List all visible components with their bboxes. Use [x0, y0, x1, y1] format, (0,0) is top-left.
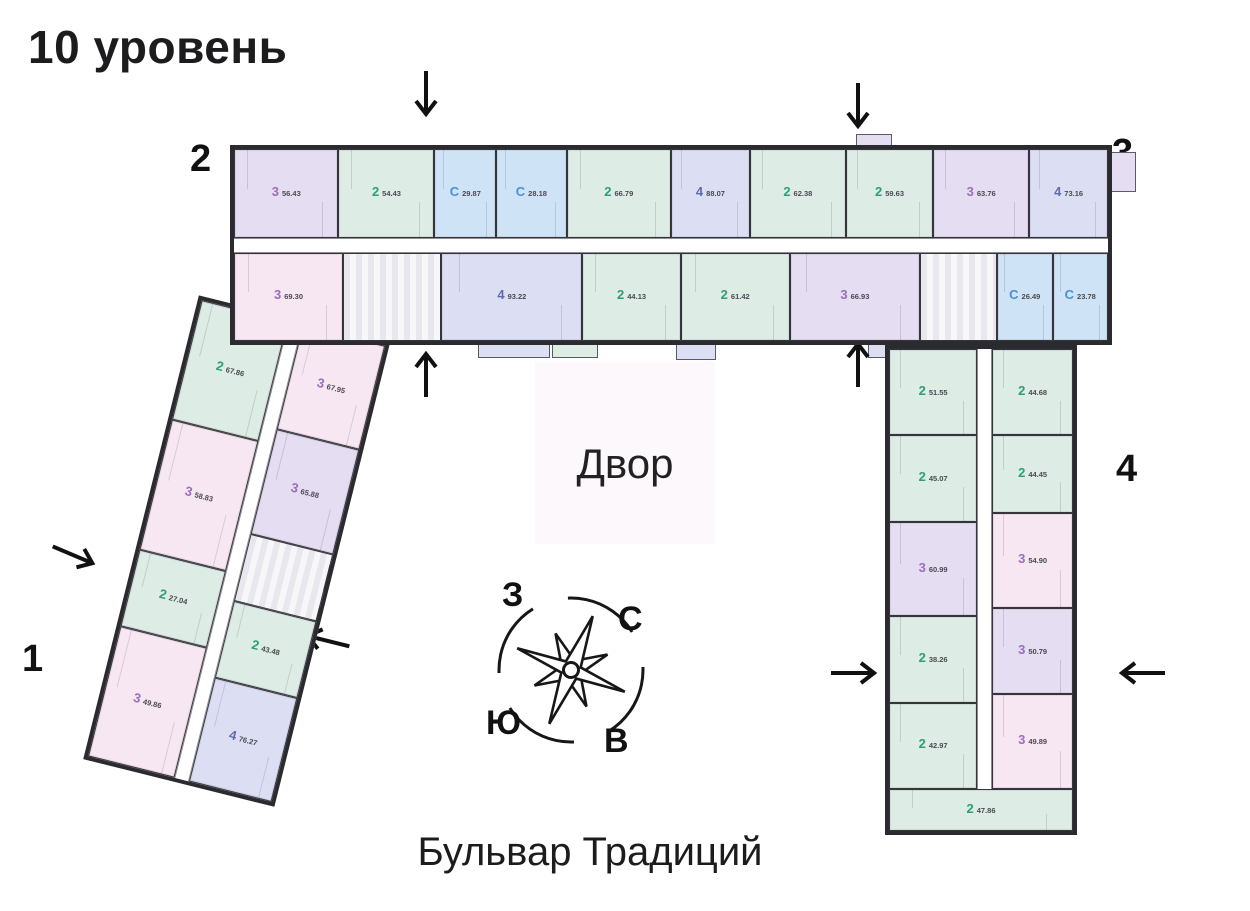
apartment-label: 488.07 — [696, 185, 725, 198]
apartment-area: 44.13 — [627, 293, 646, 301]
apartment-area: 88.07 — [706, 190, 725, 198]
apartment-rooms: 2 — [215, 359, 225, 373]
apartment-area: 44.68 — [1028, 389, 1047, 397]
apartment-rooms: 2 — [919, 737, 926, 750]
apartment-area: 67.86 — [225, 366, 245, 378]
apartment-area: 54.43 — [382, 190, 401, 198]
page-title: 10 уровень — [28, 20, 287, 74]
apartment-label: 360.99 — [919, 561, 948, 574]
apartment-area: 62.38 — [794, 190, 813, 198]
apartment-rooms: С — [1065, 288, 1074, 301]
entrance-arrow-southeast — [45, 533, 101, 576]
apartment-cell[interactable]: С29.87 — [434, 149, 496, 238]
apartment-rooms: 2 — [919, 384, 926, 397]
apartment-area: 56.43 — [282, 190, 301, 198]
apartment-label: 363.76 — [967, 185, 996, 198]
apartment-rooms: 2 — [1018, 466, 1025, 479]
wing-section-1: 267.86358.83227.04349.86 367.95365.88243… — [83, 295, 390, 806]
compass-east-label: В — [604, 722, 629, 761]
apartment-rooms: 2 — [919, 651, 926, 664]
apartment-rooms: 3 — [1018, 643, 1025, 656]
apartment-area: 29.87 — [462, 190, 481, 198]
apartment-cell[interactable]: 247.86 — [889, 789, 1073, 831]
street-name: Бульвар Традиций — [330, 830, 850, 875]
entrance-arrow-up — [845, 340, 871, 390]
apartment-label: 247.86 — [966, 802, 995, 815]
apartment-rooms: 3 — [919, 561, 926, 574]
apartment-cell[interactable]: С28.18 — [496, 149, 566, 238]
apartment-rooms: С — [516, 185, 525, 198]
apartment-cell[interactable]: 360.99 — [889, 522, 977, 617]
apartment-area: 47.86 — [977, 807, 996, 815]
apartment-label: 354.90 — [1018, 552, 1047, 565]
apartment-label: С28.18 — [516, 185, 547, 198]
apartment-cell[interactable]: 242.97 — [889, 703, 977, 789]
apartment-cell[interactable]: 261.42 — [681, 253, 790, 342]
apartment-cell[interactable]: 356.43 — [234, 149, 338, 238]
apartment-area: 50.79 — [1028, 648, 1047, 656]
apartment-rooms: 2 — [875, 185, 882, 198]
compass-south-label: Ю — [486, 704, 521, 743]
apartment-area: 45.07 — [929, 475, 948, 483]
section-number-4: 4 — [1116, 448, 1137, 491]
apartment-label: 244.68 — [1018, 384, 1047, 397]
apartment-cell[interactable]: 349.89 — [992, 694, 1073, 789]
apartment-cell[interactable]: 244.68 — [992, 349, 1073, 435]
apartment-area: 59.63 — [885, 190, 904, 198]
apartment-rooms: 2 — [783, 185, 790, 198]
corridor — [234, 238, 1108, 253]
apartment-rooms: 3 — [316, 376, 326, 390]
compass-rose: З С Ю В — [486, 576, 658, 758]
apartment-cell[interactable]: 366.93 — [790, 253, 920, 342]
apartment-cell[interactable]: 244.45 — [992, 435, 1073, 513]
apartment-rooms: 4 — [1054, 185, 1061, 198]
apartment-label: 251.55 — [919, 384, 948, 397]
apartment-area: 49.89 — [1028, 738, 1047, 746]
apartment-cell[interactable]: 473.16 — [1029, 149, 1108, 238]
entrance-arrow-right — [828, 660, 878, 686]
apartment-area: 49.86 — [142, 698, 162, 710]
apartment-area: 66.93 — [851, 293, 870, 301]
apartment-cell[interactable]: 251.55 — [889, 349, 977, 435]
apartment-area: 43.48 — [261, 645, 281, 657]
apartment-label: 227.04 — [158, 587, 189, 607]
apartment-rooms: 3 — [132, 690, 142, 704]
apartment-label: 267.86 — [215, 359, 246, 379]
apartment-area: 28.18 — [528, 190, 547, 198]
apartment-cell[interactable]: 266.79 — [567, 149, 671, 238]
stair-elevator-core — [343, 253, 441, 342]
wing-section-4: 251.55245.07360.99238.26242.97 244.68244… — [885, 345, 1077, 835]
apartment-label: С29.87 — [450, 185, 481, 198]
apartment-label: 243.48 — [251, 638, 282, 658]
apartment-area: 27.04 — [168, 594, 188, 606]
apartment-rooms: 2 — [919, 470, 926, 483]
apartment-label: 259.63 — [875, 185, 904, 198]
apartment-cell[interactable]: 259.63 — [846, 149, 933, 238]
apartment-rooms: 4 — [497, 288, 504, 301]
apartment-rooms: 4 — [696, 185, 703, 198]
apartment-area: 54.90 — [1028, 557, 1047, 565]
apartment-label: 473.16 — [1054, 185, 1083, 198]
apartment-cell[interactable]: 369.30 — [234, 253, 343, 342]
apartment-area: 66.79 — [614, 190, 633, 198]
courtyard-label: Двор — [540, 440, 710, 488]
apartment-rooms: 2 — [1018, 384, 1025, 397]
entrance-arrow-up — [413, 350, 439, 400]
wing-sections-2-3: 356.43254.43С29.87С28.18266.79488.07262.… — [230, 145, 1112, 345]
apartment-label: 366.93 — [840, 288, 869, 301]
apartment-rooms: 3 — [272, 185, 279, 198]
apartment-rooms: 3 — [274, 288, 281, 301]
apartment-cell[interactable]: 254.43 — [338, 149, 434, 238]
section-number-1: 1 — [22, 638, 43, 681]
apartment-rooms: 2 — [604, 185, 611, 198]
apartment-rooms: С — [450, 185, 459, 198]
apartment-label: 358.83 — [184, 484, 215, 504]
apartment-area: 93.22 — [508, 293, 527, 301]
apartment-rooms: 3 — [184, 484, 194, 498]
compass-west-label: З — [502, 576, 523, 615]
apartment-cell[interactable]: 350.79 — [992, 608, 1073, 694]
apartment-rooms: 3 — [840, 288, 847, 301]
apartment-area: 51.55 — [929, 389, 948, 397]
apartment-cell[interactable]: 363.76 — [933, 149, 1029, 238]
apartment-label: 245.07 — [919, 470, 948, 483]
apartment-area: 61.42 — [731, 293, 750, 301]
apartment-label: 261.42 — [721, 288, 750, 301]
entrance-arrow-down — [413, 68, 439, 118]
apartment-cell[interactable]: С26.49 — [997, 253, 1053, 342]
apartment-label: 365.88 — [290, 480, 321, 500]
apartment-label: 493.22 — [497, 288, 526, 301]
apartment-label: 349.86 — [132, 690, 163, 710]
apartment-rooms: 3 — [1018, 733, 1025, 746]
apartment-area: 73.16 — [1064, 190, 1083, 198]
apartment-area: 76.27 — [238, 735, 258, 747]
apartment-area: 26.49 — [1022, 293, 1041, 301]
apartment-label: 356.43 — [272, 185, 301, 198]
apartment-cell[interactable]: 488.07 — [671, 149, 750, 238]
balcony — [1110, 152, 1136, 192]
apartment-cell[interactable]: 244.13 — [582, 253, 680, 342]
apartment-label: 262.38 — [783, 185, 812, 198]
apartment-rooms: 3 — [967, 185, 974, 198]
apartment-label: 238.26 — [919, 651, 948, 664]
apartment-area: 44.45 — [1028, 471, 1047, 479]
apartment-cell[interactable]: 493.22 — [441, 253, 582, 342]
section-number-2: 2 — [190, 138, 211, 181]
apartment-label: С26.49 — [1009, 288, 1040, 301]
apartment-area: 60.99 — [929, 566, 948, 574]
apartment-rooms: 2 — [617, 288, 624, 301]
apartment-label: 369.30 — [274, 288, 303, 301]
apartment-area: 69.30 — [284, 293, 303, 301]
apartment-rooms: 2 — [966, 802, 973, 815]
apartment-rooms: 2 — [158, 587, 168, 601]
apartment-cell[interactable]: С23.78 — [1053, 253, 1109, 342]
apartment-label: 476.27 — [228, 728, 259, 748]
apartment-area: 65.88 — [300, 488, 320, 500]
apartment-rooms: 4 — [228, 728, 238, 742]
apartment-rooms: 2 — [721, 288, 728, 301]
apartment-rooms: С — [1009, 288, 1018, 301]
corridor — [977, 349, 992, 789]
floor-plan-canvas: 10 уровень Двор 2 3 1 4 267.86358.83227.… — [0, 0, 1250, 911]
apartment-rooms: 2 — [372, 185, 379, 198]
apartment-cell[interactable]: 354.90 — [992, 513, 1073, 608]
apartment-label: 244.13 — [617, 288, 646, 301]
apartment-rooms: 3 — [290, 480, 300, 494]
apartment-cell[interactable]: 238.26 — [889, 616, 977, 702]
apartment-label: 254.43 — [372, 185, 401, 198]
apartment-label: 367.95 — [316, 376, 347, 396]
compass-north-label: С — [618, 600, 643, 639]
apartment-rooms: 2 — [251, 638, 261, 652]
apartment-area: 63.76 — [977, 190, 996, 198]
apartment-label: С23.78 — [1065, 288, 1096, 301]
apartment-area: 67.95 — [326, 383, 346, 395]
apartment-cell[interactable]: 245.07 — [889, 435, 977, 521]
entrance-arrow-down — [845, 80, 871, 130]
entrance-arrow-left — [1118, 660, 1168, 686]
apartment-area: 58.83 — [194, 491, 214, 503]
apartment-label: 242.97 — [919, 737, 948, 750]
apartment-cell[interactable]: 262.38 — [750, 149, 846, 238]
apartment-label: 349.89 — [1018, 733, 1047, 746]
apartment-label: 266.79 — [604, 185, 633, 198]
apartment-rooms: 3 — [1018, 552, 1025, 565]
apartment-label: 244.45 — [1018, 466, 1047, 479]
apartment-area: 23.78 — [1077, 293, 1096, 301]
stair-elevator-core — [920, 253, 997, 342]
apartment-area: 38.26 — [929, 656, 948, 664]
apartment-area: 42.97 — [929, 742, 948, 750]
apartment-label: 350.79 — [1018, 643, 1047, 656]
